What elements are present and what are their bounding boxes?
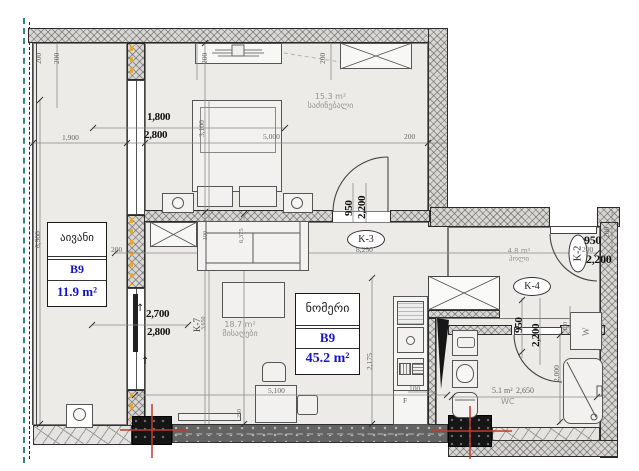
washer-label: W bbox=[581, 328, 591, 337]
bath-cabinet-knob bbox=[457, 337, 475, 348]
dim-950-k4: 950 bbox=[513, 317, 525, 333]
window-band-bottom bbox=[172, 424, 448, 443]
wc-name: WC bbox=[501, 397, 515, 406]
dim-950-k3: 950 bbox=[343, 200, 355, 216]
dish-rack bbox=[397, 301, 424, 325]
tv-cabinet bbox=[150, 222, 197, 247]
hall-area-label: 4.8 m² ჰოლი bbox=[495, 247, 543, 263]
fridge-label: F bbox=[403, 396, 407, 405]
suite-label-box: ნომერი B9 45.2 m² bbox=[295, 293, 360, 375]
chair-right bbox=[297, 395, 318, 415]
wall-top bbox=[28, 28, 430, 43]
console-bench bbox=[178, 413, 241, 421]
wall-under-shaft bbox=[428, 310, 500, 318]
door-tag-k4: K-4 bbox=[513, 277, 551, 296]
dim-200-topleft-1: 200 bbox=[34, 53, 43, 64]
dim-2175: 2,175 bbox=[365, 353, 374, 370]
living-name: მისაღები bbox=[222, 329, 257, 338]
concrete-column-mid bbox=[448, 415, 492, 447]
dim-2200-k2: 2,200 bbox=[586, 252, 612, 267]
dim-2200-k4: 2,200 bbox=[530, 324, 542, 347]
bedroom-area-label: 15.3 m² საძინებალი bbox=[288, 92, 373, 110]
bedroom-area: 15.3 m² bbox=[315, 92, 346, 101]
bath-sink-bowl bbox=[456, 364, 474, 383]
wall-bedroom-living-right bbox=[390, 210, 430, 222]
dim-2800-bottom: 2,800 bbox=[147, 326, 170, 338]
dim-100-bed: 100 bbox=[203, 231, 209, 240]
dim-200-bedroom-left: 200 bbox=[200, 53, 209, 64]
up-arrow-2: ↑ bbox=[141, 356, 149, 367]
dim-8250: 8,250 bbox=[356, 245, 373, 254]
wall-bedroom-right bbox=[428, 28, 448, 227]
dim-5000: 5,000 bbox=[263, 132, 280, 141]
insulation-marks bbox=[130, 218, 133, 285]
dim-1900: 1,900 bbox=[62, 133, 79, 142]
floor-plan: 200 200 200 200 1,900 1,800 2,800 3,100 … bbox=[0, 0, 639, 471]
door-tag-k3-label: K-3 bbox=[358, 234, 374, 245]
dim-200-edge: 200 bbox=[602, 227, 611, 238]
suite-unit: B9 bbox=[296, 329, 359, 347]
dim-200-right: 200 bbox=[404, 132, 415, 141]
lamp-right bbox=[291, 197, 303, 209]
coffee-table bbox=[222, 282, 285, 318]
up-arrow-1: ↑ bbox=[136, 303, 144, 314]
dim-2800-top: 2,800 bbox=[144, 129, 167, 141]
wall-balcony-seg1 bbox=[127, 43, 145, 80]
site-boundary-line bbox=[23, 18, 25, 463]
separator bbox=[296, 325, 359, 326]
band-dash bbox=[176, 433, 444, 435]
balcony-unit: B9 bbox=[48, 260, 106, 279]
bedroom-name: საძინებალი bbox=[308, 101, 354, 110]
balcony-name: აივანი bbox=[48, 223, 106, 255]
balcony-drain bbox=[73, 408, 86, 421]
dim-2200-k3: 2,200 bbox=[356, 196, 368, 219]
dim-200-wall: 200 bbox=[111, 245, 122, 254]
burner-left bbox=[399, 363, 411, 375]
toilet bbox=[452, 392, 478, 418]
hall-area: 4.8 m² bbox=[508, 247, 531, 255]
bed-pillow-area bbox=[200, 107, 276, 153]
shower-tray bbox=[563, 358, 603, 424]
balcony-label-box: აივანი B9 11.9 m² bbox=[47, 222, 107, 307]
wc-area: 5.1 m² bbox=[492, 386, 513, 395]
living-area: 18.7 m² bbox=[224, 320, 255, 329]
bed-cushion-right bbox=[239, 186, 277, 207]
hall-name: ჰოლი bbox=[509, 255, 529, 263]
balcony-floor-strip bbox=[33, 425, 132, 445]
lamp-left bbox=[172, 197, 184, 209]
dim-6900: 6,900 bbox=[33, 231, 42, 248]
suite-name: ნომერი bbox=[296, 294, 359, 324]
dim-2000: 2,000 bbox=[552, 365, 561, 382]
dim-2700: 2,700 bbox=[146, 308, 169, 320]
dim-6375: 6,375 bbox=[238, 228, 245, 243]
plot-boundary-line bbox=[29, 22, 30, 459]
wall-balcony-seg2 bbox=[127, 215, 145, 288]
door-tag-k4-label: K-4 bbox=[524, 281, 540, 292]
dim-100-kitchen: 100 bbox=[409, 384, 420, 393]
wc-floor-strip bbox=[492, 427, 600, 441]
balcony-area: 11.9 m² bbox=[48, 281, 106, 300]
living-area-label: 18.7 m² მისაღები bbox=[210, 320, 270, 338]
wardrobe bbox=[340, 43, 412, 69]
suite-area: 45.2 m² bbox=[296, 349, 359, 367]
wall-kitchen-bath bbox=[428, 318, 436, 432]
burner-right bbox=[412, 363, 424, 375]
dim-2650: 2,650 bbox=[516, 386, 534, 395]
dim-100-washer: 100 bbox=[563, 322, 569, 331]
vent-shaft bbox=[428, 276, 500, 310]
dim-250: 250 bbox=[237, 409, 243, 418]
insulation-marks bbox=[130, 46, 133, 77]
balcony-window-upper bbox=[127, 80, 145, 215]
sink-faucet bbox=[406, 336, 415, 345]
dim-3100: 3,100 bbox=[197, 120, 206, 137]
chair-top bbox=[262, 362, 286, 382]
separator bbox=[48, 256, 106, 257]
concrete-column-left bbox=[132, 416, 172, 445]
dim-200-bedroom-right: 200 bbox=[318, 53, 327, 64]
dim-200-topleft-2: 200 bbox=[52, 53, 61, 64]
bed-cushion-left bbox=[197, 186, 233, 207]
dim-3650: 3,650 bbox=[201, 317, 207, 331]
dim-1800: 1,800 bbox=[147, 111, 170, 123]
dim-5100: 5,100 bbox=[268, 386, 285, 395]
wall-hall-top bbox=[430, 207, 550, 227]
